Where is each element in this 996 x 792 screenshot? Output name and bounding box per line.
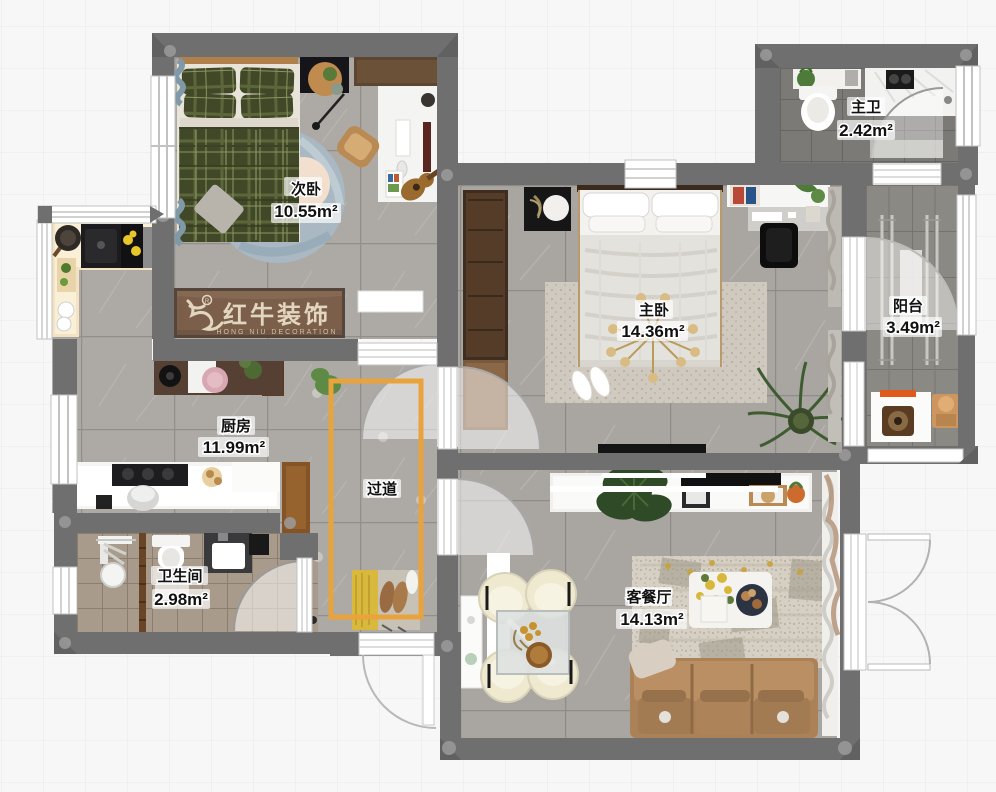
svg-text:主卫: 主卫 xyxy=(851,98,881,116)
svg-text:红牛装饰: 红牛装饰 xyxy=(223,301,331,329)
svg-text:客餐厅: 客餐厅 xyxy=(625,588,671,606)
svg-text:11.99m²: 11.99m² xyxy=(203,438,266,457)
svg-text:14.13m²: 14.13m² xyxy=(620,610,684,629)
svg-text:卫生间: 卫生间 xyxy=(157,567,202,585)
svg-text:HONG NIU DECORATION: HONG NIU DECORATION xyxy=(216,329,337,336)
svg-text:次卧: 次卧 xyxy=(291,180,321,198)
svg-text:过道: 过道 xyxy=(367,480,397,498)
svg-text:2.98m²: 2.98m² xyxy=(154,590,208,609)
svg-text:R: R xyxy=(205,299,210,305)
svg-text:主卧: 主卧 xyxy=(639,301,669,319)
svg-text:阳台: 阳台 xyxy=(893,297,923,315)
svg-text:10.55m²: 10.55m² xyxy=(274,202,338,221)
svg-text:3.49m²: 3.49m² xyxy=(886,318,940,337)
svg-text:14.36m²: 14.36m² xyxy=(621,322,685,341)
svg-text:厨房: 厨房 xyxy=(221,417,251,435)
svg-text:2.42m²: 2.42m² xyxy=(839,121,893,140)
